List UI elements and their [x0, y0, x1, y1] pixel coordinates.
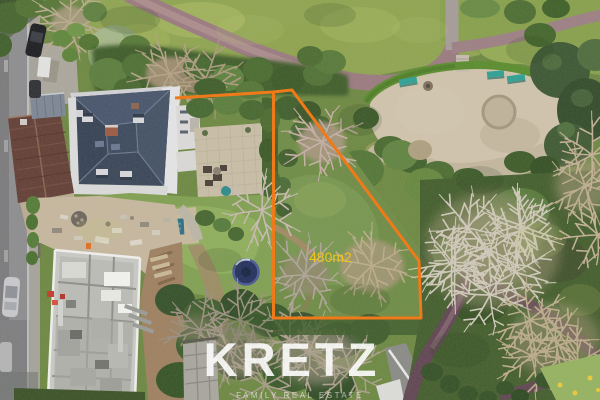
- svg-text:480m2: 480m2: [309, 249, 352, 265]
